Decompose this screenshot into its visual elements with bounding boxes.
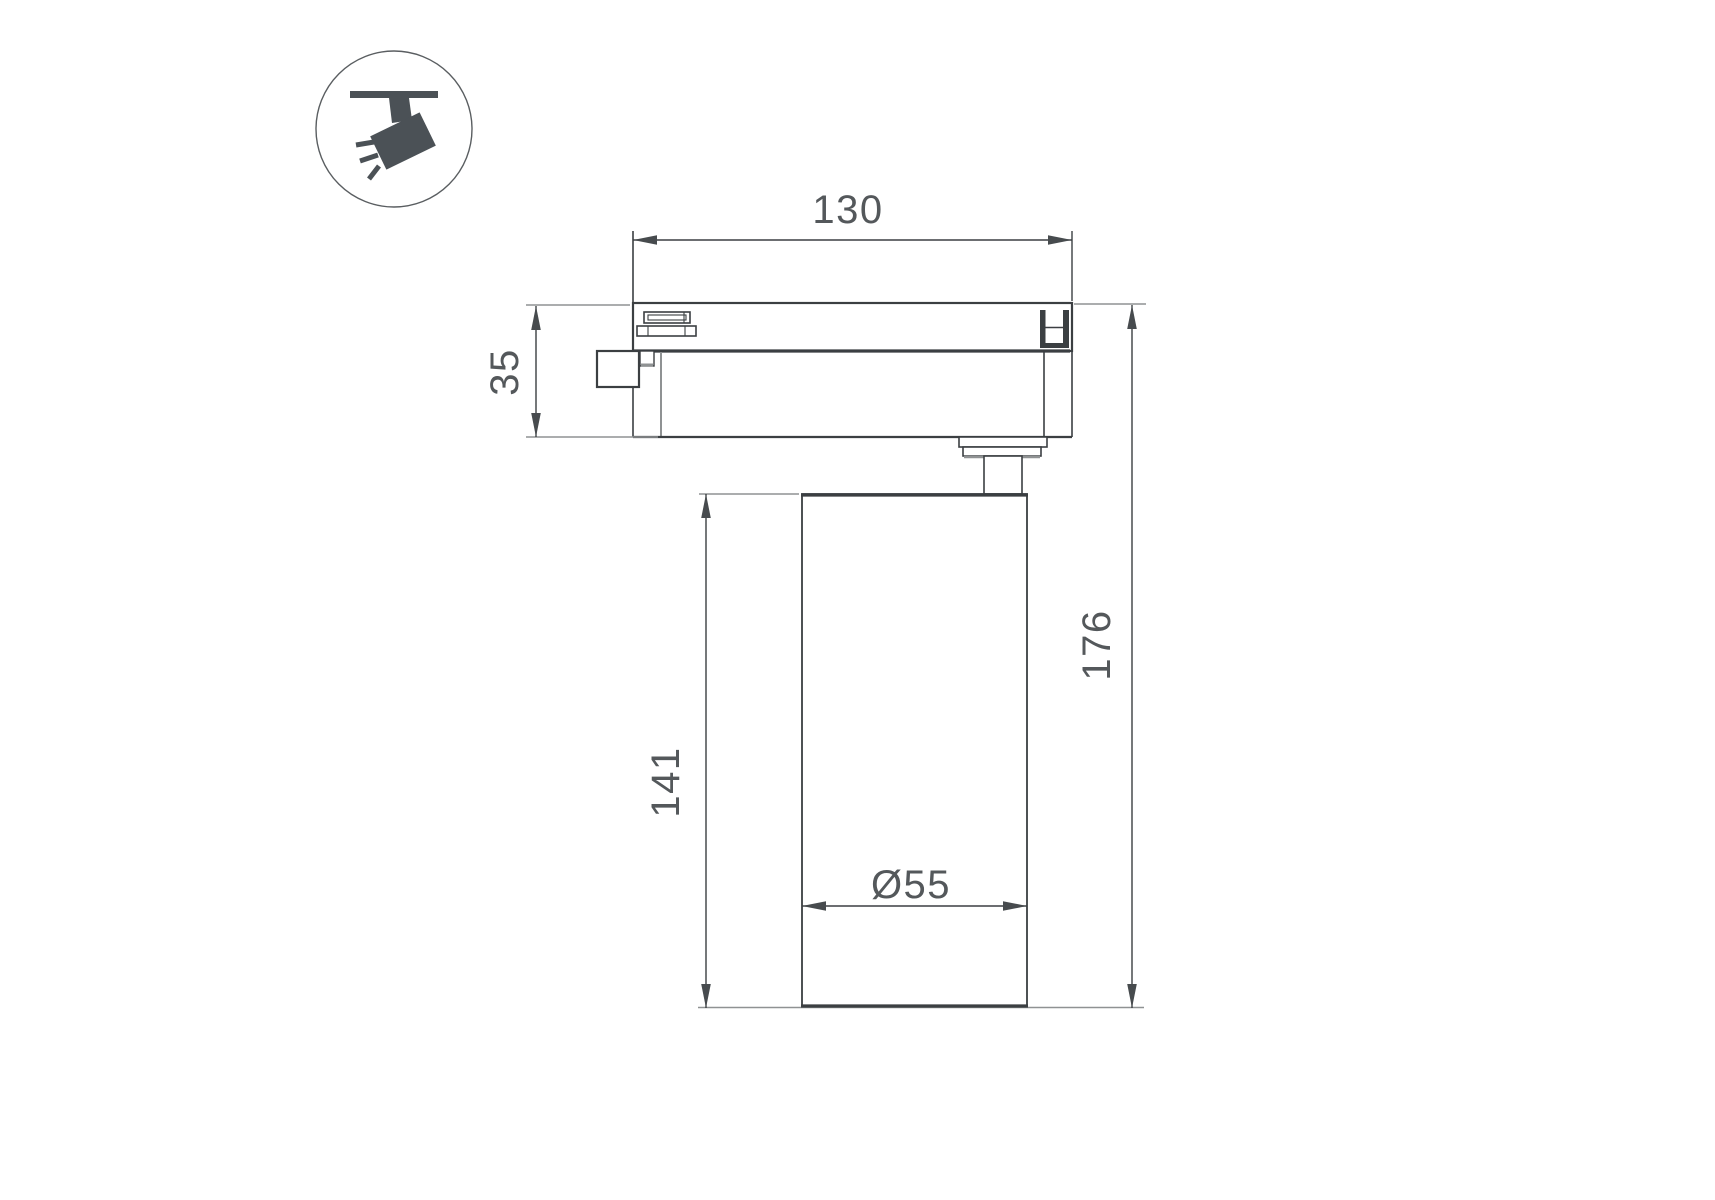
power-contact-left-wall [1040, 310, 1046, 348]
arrowhead-down [1127, 984, 1137, 1008]
arrowhead-up [701, 494, 711, 518]
power-contact-bottom [1040, 343, 1069, 348]
adapter-top-plate [633, 303, 1072, 351]
drawing-canvas: 130 35 141 176 Ø55 [0, 0, 1715, 1200]
neck-flange-lower [963, 447, 1041, 456]
arrowhead-right [1048, 235, 1072, 245]
icon-light-ray [356, 142, 374, 145]
fixture-type-icon [316, 51, 472, 207]
dimension-label-141: 141 [644, 746, 688, 817]
neck-stem [984, 456, 1022, 494]
arrowhead-down [701, 984, 711, 1008]
cylinder-outline [802, 494, 1027, 1007]
dimension-label-130: 130 [812, 188, 883, 232]
technical-drawing-page: 130 35 141 176 Ø55 [0, 0, 1715, 1200]
contact-clip-upper [644, 312, 690, 323]
swivel-neck [959, 437, 1047, 494]
track-adapter [597, 231, 1072, 437]
arrowhead-down [531, 413, 541, 437]
arrowhead-up [1127, 305, 1137, 329]
dimension-label-diameter: Ø55 [871, 863, 951, 907]
contact-clip-lower [637, 326, 696, 336]
power-contact-right-wall [1063, 310, 1069, 348]
dimension-track-width: 130 [633, 188, 1072, 301]
dimension-label-35: 35 [483, 348, 527, 396]
arrowhead-up [531, 306, 541, 330]
lamp-body [698, 494, 1144, 1008]
dimension-label-176: 176 [1075, 609, 1119, 680]
dimension-total-height: 176 [1074, 304, 1146, 1008]
icon-track-bar [350, 91, 438, 98]
latch-lever [597, 351, 639, 387]
page: { "colors": { "background": "#ffffff", "… [0, 0, 1715, 1200]
neck-flange-upper [959, 437, 1047, 447]
dimension-body-height: 141 [644, 494, 799, 1008]
arrowhead-left [633, 235, 657, 245]
